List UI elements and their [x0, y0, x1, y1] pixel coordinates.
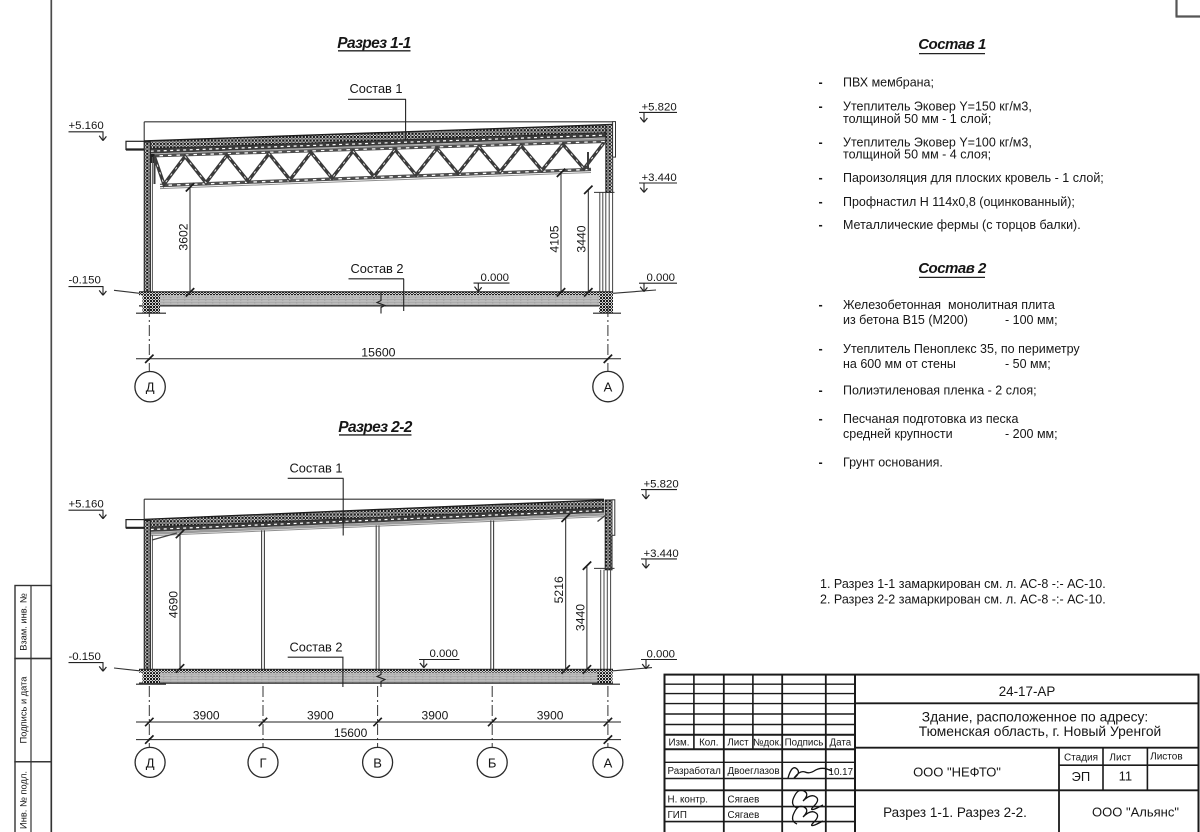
svg-text:24-17-АР: 24-17-АР — [999, 684, 1056, 699]
svg-text:Сягаев: Сягаев — [728, 810, 760, 821]
svg-text:Изм.: Изм. — [669, 737, 690, 748]
svg-text:-0.150: -0.150 — [69, 275, 101, 287]
svg-text:Подпись и дата: Подпись и дата — [19, 676, 29, 744]
svg-text:-: - — [819, 218, 823, 232]
svg-text:Полиэтиленовая пленка - 2 слоя: Полиэтиленовая пленка - 2 слоя; — [843, 384, 1037, 398]
svg-text:-: - — [819, 171, 823, 185]
svg-text:А: А — [604, 380, 613, 395]
svg-text:+5.160: +5.160 — [69, 498, 104, 510]
svg-text:Подпись: Подпись — [785, 737, 824, 748]
svg-text:3900: 3900 — [193, 708, 220, 722]
svg-text:3900: 3900 — [422, 708, 449, 722]
svg-text:толщиной 50 мм - 1 слой;: толщиной 50 мм - 1 слой; — [843, 112, 991, 126]
svg-text:4105: 4105 — [547, 225, 561, 252]
svg-text:Разрез 1-1: Разрез 1-1 — [337, 35, 411, 52]
svg-text:0.000: 0.000 — [647, 272, 676, 284]
svg-text:Инв. № подл.: Инв. № подл. — [19, 771, 29, 829]
svg-text:-: - — [819, 135, 823, 149]
svg-text:5216: 5216 — [552, 576, 566, 603]
svg-text:Состав 1: Состав 1 — [349, 81, 402, 96]
svg-text:Лист: Лист — [727, 737, 749, 748]
svg-text:Профнастил Н 114х0,8 (оцинкова: Профнастил Н 114х0,8 (оцинкованный); — [843, 195, 1075, 209]
svg-text:ООО "Альянс": ООО "Альянс" — [1092, 804, 1179, 819]
svg-text:+5.820: +5.820 — [642, 101, 677, 113]
svg-text:3900: 3900 — [537, 708, 564, 722]
svg-text:Листов: Листов — [1150, 751, 1183, 762]
svg-text:+5.160: +5.160 — [69, 120, 104, 132]
svg-text:-: - — [819, 298, 823, 312]
svg-text:-: - — [819, 455, 823, 469]
svg-text:3900: 3900 — [307, 708, 334, 722]
svg-text:Состав 1: Состав 1 — [289, 461, 342, 476]
svg-text:Кол.: Кол. — [699, 737, 718, 748]
svg-text:Дата: Дата — [830, 737, 852, 748]
svg-text:Разрез 2-2: Разрез 2-2 — [338, 419, 413, 436]
svg-text:Песчаная подготовка из песка: Песчаная подготовка из песка — [843, 412, 1019, 426]
svg-text:Сягаев: Сягаев — [728, 795, 760, 806]
svg-text:Б: Б — [488, 755, 497, 770]
svg-text:Состав 2: Состав 2 — [918, 260, 987, 277]
svg-text:1. Разрез 1-1 замаркирован см.: 1. Разрез 1-1 замаркирован см. л. АС-8 -… — [820, 577, 1106, 591]
svg-text:-: - — [819, 76, 823, 90]
svg-text:- 100 мм;: - 100 мм; — [1005, 313, 1058, 327]
svg-text:- 50 мм;: - 50 мм; — [1005, 357, 1051, 371]
svg-text:Состав 2: Состав 2 — [289, 640, 342, 655]
svg-text:3440: 3440 — [573, 604, 587, 631]
svg-text:Стадия: Стадия — [1064, 752, 1098, 763]
svg-text:11: 11 — [1119, 768, 1133, 783]
svg-text:-: - — [819, 342, 823, 356]
svg-text:Здание, расположенное по адрес: Здание, расположенное по адресу: — [922, 710, 1149, 725]
svg-text:В: В — [373, 755, 382, 770]
svg-text:Н. контр.: Н. контр. — [668, 795, 708, 806]
svg-text:ГИП: ГИП — [668, 810, 687, 821]
svg-text:Д: Д — [146, 755, 155, 770]
svg-text:0.000: 0.000 — [481, 272, 510, 284]
svg-text:Железобетонная монолитная пли: Железобетонная монолитная плита — [843, 298, 1055, 312]
svg-text:Утеплитель Пеноплекс 35, по пе: Утеплитель Пеноплекс 35, по периметру — [843, 342, 1080, 356]
svg-text:Грунт основания.: Грунт основания. — [843, 455, 943, 469]
svg-text:10.17: 10.17 — [829, 767, 854, 778]
svg-text:№док.: №док. — [753, 737, 782, 748]
svg-text:-: - — [819, 384, 823, 398]
svg-text:15600: 15600 — [334, 726, 368, 740]
svg-text:толщиной 50 мм - 4 слоя;: толщиной 50 мм - 4 слоя; — [843, 148, 991, 162]
svg-text:Состав 2: Состав 2 — [350, 261, 403, 276]
svg-text:Тюменская область, г. Новый Ур: Тюменская область, г. Новый Уренгой — [919, 724, 1161, 739]
svg-text:Д: Д — [146, 380, 155, 395]
svg-text:Разработал: Разработал — [668, 766, 722, 777]
svg-text:-: - — [819, 100, 823, 114]
svg-text:3440: 3440 — [575, 225, 589, 252]
svg-text:-0.150: -0.150 — [69, 651, 101, 663]
svg-text:0.000: 0.000 — [647, 648, 676, 660]
svg-text:- 200 мм;: - 200 мм; — [1005, 427, 1058, 441]
svg-text:из бетона В15 (М200): из бетона В15 (М200) — [843, 313, 968, 327]
svg-text:Взам. инв. №: Взам. инв. № — [19, 593, 29, 651]
svg-text:15600: 15600 — [361, 345, 395, 359]
svg-text:0.000: 0.000 — [430, 648, 459, 660]
svg-text:Состав 1: Состав 1 — [918, 36, 986, 53]
svg-text:ООО "НЕФТО": ООО "НЕФТО" — [913, 764, 1001, 779]
svg-text:3602: 3602 — [176, 223, 190, 250]
svg-text:2. Разрез 2-2 замаркирован см.: 2. Разрез 2-2 замаркирован см. л. АС-8 -… — [820, 593, 1106, 607]
svg-text:-: - — [819, 412, 823, 426]
svg-text:Лист: Лист — [1109, 752, 1131, 763]
svg-text:ЭП: ЭП — [1072, 769, 1091, 784]
svg-text:+5.820: +5.820 — [644, 479, 679, 491]
svg-text:А: А — [604, 755, 613, 770]
svg-text:Разрез 1-1. Разрез 2-2.: Разрез 1-1. Разрез 2-2. — [883, 805, 1027, 820]
svg-text:+3.440: +3.440 — [642, 172, 677, 184]
svg-text:Металлические фермы (с торцов: Металлические фермы (с торцов балки). — [843, 218, 1081, 232]
svg-text:Двоеглазов: Двоеглазов — [728, 766, 780, 777]
svg-text:4690: 4690 — [166, 591, 180, 618]
svg-text:средней крупности: средней крупности — [843, 427, 953, 441]
svg-text:+3.440: +3.440 — [644, 548, 679, 560]
svg-text:Г: Г — [259, 755, 266, 770]
svg-text:Пароизоляция для плоских крове: Пароизоляция для плоских кровель - 1 сло… — [843, 171, 1104, 185]
svg-text:-: - — [819, 195, 823, 209]
svg-text:ПВХ мембрана;: ПВХ мембрана; — [843, 76, 934, 90]
svg-text:на 600 мм от стены: на 600 мм от стены — [843, 357, 956, 371]
